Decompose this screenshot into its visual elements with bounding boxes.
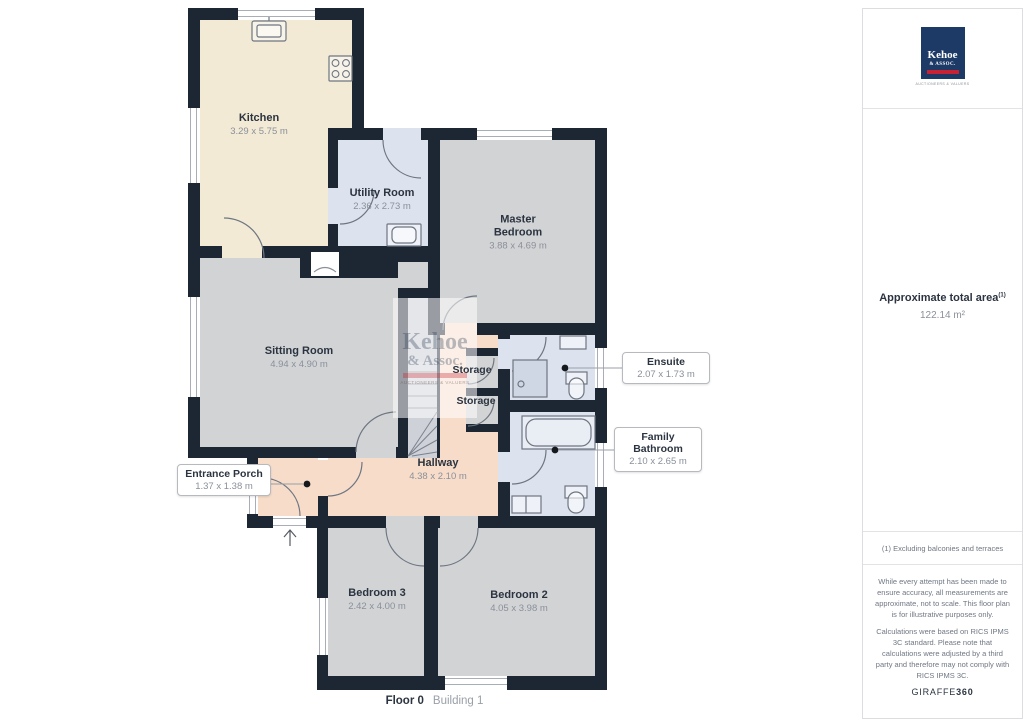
callout-family-bathroom: Family Bathroom 2.10 x 2.65 m — [614, 427, 702, 472]
agency-logo: Kehoe & ASSOC. — [921, 27, 965, 79]
disclaimer-1: While every attempt has been made to ens… — [863, 577, 1022, 621]
watermark: Kehoe & Assoc. AUCTIONEERS & VALUERS — [393, 298, 477, 418]
footnote-text: (1) Excluding balconies and terraces — [863, 544, 1022, 553]
door-arc — [356, 412, 396, 452]
door-arc — [383, 140, 421, 178]
sink-icon — [560, 336, 586, 349]
logo-section: Kehoe & ASSOC. AUCTIONEERS & VALUERS — [863, 27, 1022, 86]
callout-entrance-porch: Entrance Porch1.37 x 1.38 m — [177, 464, 271, 496]
fireplace-icon — [311, 252, 339, 276]
total-area-value: 122.14 m² — [863, 310, 1022, 321]
leader-dot — [552, 447, 559, 454]
logo-red-bar — [927, 70, 959, 74]
total-area-label: Approximate total area(1) — [863, 292, 1022, 304]
washing-machine-icon — [387, 224, 421, 246]
bathtub-icon — [522, 416, 595, 449]
shower-icon — [513, 360, 547, 397]
leader-dot — [304, 481, 311, 488]
info-sidebar: Kehoe & ASSOC. AUCTIONEERS & VALUERS App… — [862, 8, 1023, 719]
footnote-marker: (1) — [998, 292, 1005, 298]
entrance-arrow-icon — [284, 530, 296, 546]
door-arc — [224, 218, 264, 258]
door-arc — [386, 528, 424, 566]
logo-tagline: AUCTIONEERS & VALUERS — [863, 82, 1022, 86]
divider — [863, 531, 1022, 532]
disclaimer-2: Calculations were based on RICS IPMS 3C … — [863, 627, 1022, 681]
building-label: Building 1 — [433, 695, 484, 707]
door-arc — [512, 450, 546, 484]
floor-caption: Floor 0Building 1 — [352, 695, 517, 707]
giraffe360-brand: GIRAFFE360 — [863, 687, 1022, 697]
door-arc — [328, 462, 362, 496]
door-arc — [440, 528, 478, 566]
leader-dot — [562, 365, 569, 372]
hob-icon — [329, 56, 352, 81]
callout-ensuite: Ensuite2.07 x 1.73 m — [622, 352, 710, 384]
total-area-section: Approximate total area(1) 122.14 m² — [863, 292, 1022, 321]
watermark-text: Kehoe — [402, 331, 467, 354]
divider — [863, 108, 1022, 109]
floor-label: Floor 0 — [386, 695, 424, 707]
watermark-bar — [403, 373, 467, 378]
divider — [863, 564, 1022, 565]
door-arc — [340, 190, 374, 224]
